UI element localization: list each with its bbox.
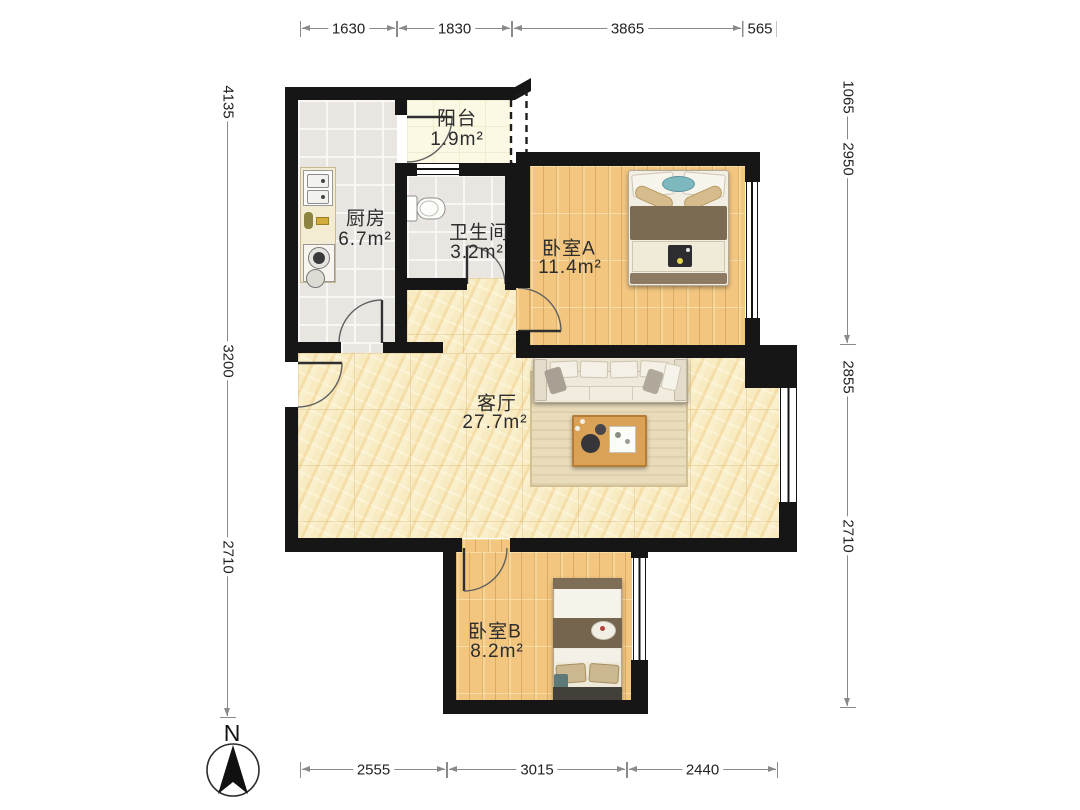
dimension-label: 2950 bbox=[838, 139, 859, 178]
dimension-top-1: 1630 bbox=[300, 21, 397, 37]
dimension-label: 2710 bbox=[218, 537, 239, 576]
dimension-label: 1630 bbox=[328, 21, 369, 38]
wall-segment bbox=[383, 342, 443, 353]
dimension-label: 3200 bbox=[218, 341, 239, 380]
wall-segment bbox=[285, 538, 462, 552]
dimension-bottom-3: 2440 bbox=[627, 762, 778, 778]
bedroom-a-area: 11.4m² bbox=[538, 257, 602, 279]
bedroom-b-area: 8.2m² bbox=[470, 641, 524, 663]
bathroom-label: 卫生间 bbox=[449, 218, 509, 245]
dimension-label: 1065 bbox=[838, 77, 859, 116]
balcony-area: 1.9m² bbox=[430, 129, 484, 151]
dimension-right-3: 2855 bbox=[840, 368, 856, 527]
dimension-label: 565 bbox=[743, 21, 776, 38]
dimension-top-3: 3865 bbox=[512, 21, 743, 37]
kitchen-area: 6.7m² bbox=[338, 229, 392, 251]
kitchen-label: 厨房 bbox=[346, 204, 386, 231]
wall-segment bbox=[285, 342, 341, 353]
dimension-label: 1830 bbox=[434, 21, 475, 38]
wall-segment bbox=[395, 163, 407, 353]
bedroom-a-door bbox=[518, 288, 561, 331]
wall-segment bbox=[779, 502, 797, 542]
wall-segment bbox=[745, 152, 760, 182]
wall-segment bbox=[631, 548, 648, 558]
dimension-left-2: 3200 bbox=[220, 352, 236, 548]
living-room-window bbox=[780, 388, 797, 502]
floor-plan-canvas: 阳台 1.9m² 厨房 6.7m² 卫生间 3.2m² 卧室A 11.4m² 客… bbox=[0, 0, 1080, 810]
entry-door bbox=[298, 363, 342, 407]
dimension-label: 2855 bbox=[838, 357, 859, 396]
wall-segment bbox=[516, 152, 760, 166]
compass-north-icon: N bbox=[201, 714, 265, 802]
wall-segment bbox=[407, 278, 467, 290]
wall-segment bbox=[510, 538, 797, 552]
wall-segment bbox=[745, 318, 760, 345]
dimension-label: 3865 bbox=[607, 21, 648, 38]
bathroom-balcony-window bbox=[417, 163, 459, 175]
wall-segment bbox=[516, 152, 530, 288]
dimension-bottom-1: 2555 bbox=[300, 762, 447, 778]
dimension-right-2: 2950 bbox=[840, 150, 856, 345]
wall-segment bbox=[395, 100, 407, 115]
wall-segment bbox=[745, 345, 797, 388]
dimension-left-1: 4135 bbox=[220, 93, 236, 352]
dimension-label: 3015 bbox=[516, 762, 557, 779]
dimension-label: 2555 bbox=[353, 762, 394, 779]
wall-segment bbox=[285, 87, 298, 362]
svg-text:N: N bbox=[224, 720, 241, 746]
wall-segment bbox=[516, 345, 760, 358]
dimension-bottom-2: 3015 bbox=[447, 762, 627, 778]
toilet-icon bbox=[404, 196, 445, 221]
living-room-area: 27.7m² bbox=[462, 412, 527, 434]
bedroom-b-door bbox=[464, 548, 507, 591]
dimension-left-3: 2710 bbox=[220, 548, 236, 718]
dimension-label: 4135 bbox=[218, 82, 239, 121]
wall-segment bbox=[443, 700, 648, 714]
bathroom-area: 3.2m² bbox=[450, 242, 504, 264]
dimension-label: 2440 bbox=[682, 762, 723, 779]
dimension-top-4: 565 bbox=[743, 21, 777, 37]
bedroom-a-window bbox=[746, 182, 758, 318]
balcony-label: 阳台 bbox=[437, 104, 477, 131]
dimension-right-4: 2710 bbox=[840, 527, 856, 708]
wall-segment bbox=[285, 87, 515, 100]
wall-segment bbox=[631, 660, 648, 714]
wall-segment bbox=[285, 407, 298, 552]
dimension-top-2: 1830 bbox=[397, 21, 512, 37]
kitchen-door bbox=[339, 300, 382, 343]
wall-segment bbox=[407, 163, 417, 176]
bedroom-b-window bbox=[633, 558, 646, 660]
wall-segment bbox=[443, 552, 456, 714]
dimension-label: 2710 bbox=[838, 516, 859, 555]
plan-symbols bbox=[0, 0, 1080, 810]
bedroom-b-label: 卧室B bbox=[468, 617, 522, 644]
